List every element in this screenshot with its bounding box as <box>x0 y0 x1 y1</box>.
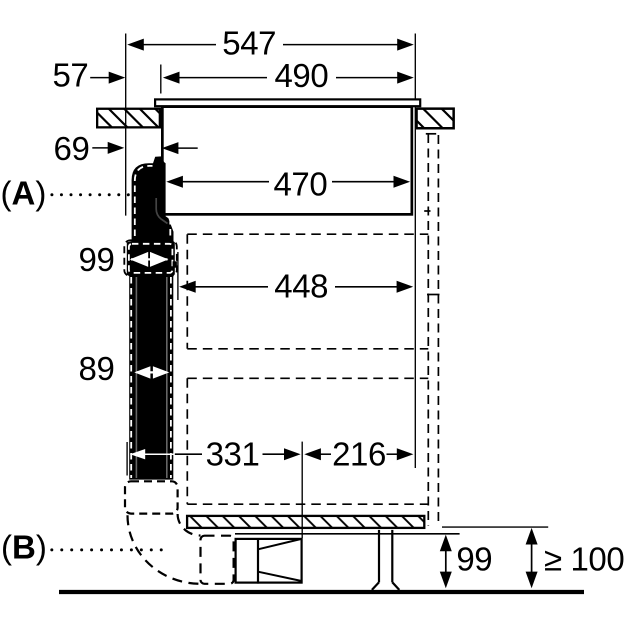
svg-text:470: 470 <box>273 166 327 203</box>
svg-text:99: 99 <box>456 541 492 578</box>
svg-text:69: 69 <box>54 130 90 167</box>
svg-text:99: 99 <box>79 241 115 278</box>
svg-text:≥ 100: ≥ 100 <box>544 541 624 578</box>
svg-text:490: 490 <box>274 57 328 94</box>
svg-text:547: 547 <box>222 25 276 62</box>
svg-text:216: 216 <box>332 435 386 472</box>
svg-text:448: 448 <box>274 267 328 304</box>
svg-text:89: 89 <box>79 350 115 387</box>
svg-text:57: 57 <box>52 57 88 94</box>
svg-text:(B): (B) <box>1 528 47 565</box>
svg-text:(A): (A) <box>1 174 47 211</box>
svg-text:331: 331 <box>206 435 260 472</box>
